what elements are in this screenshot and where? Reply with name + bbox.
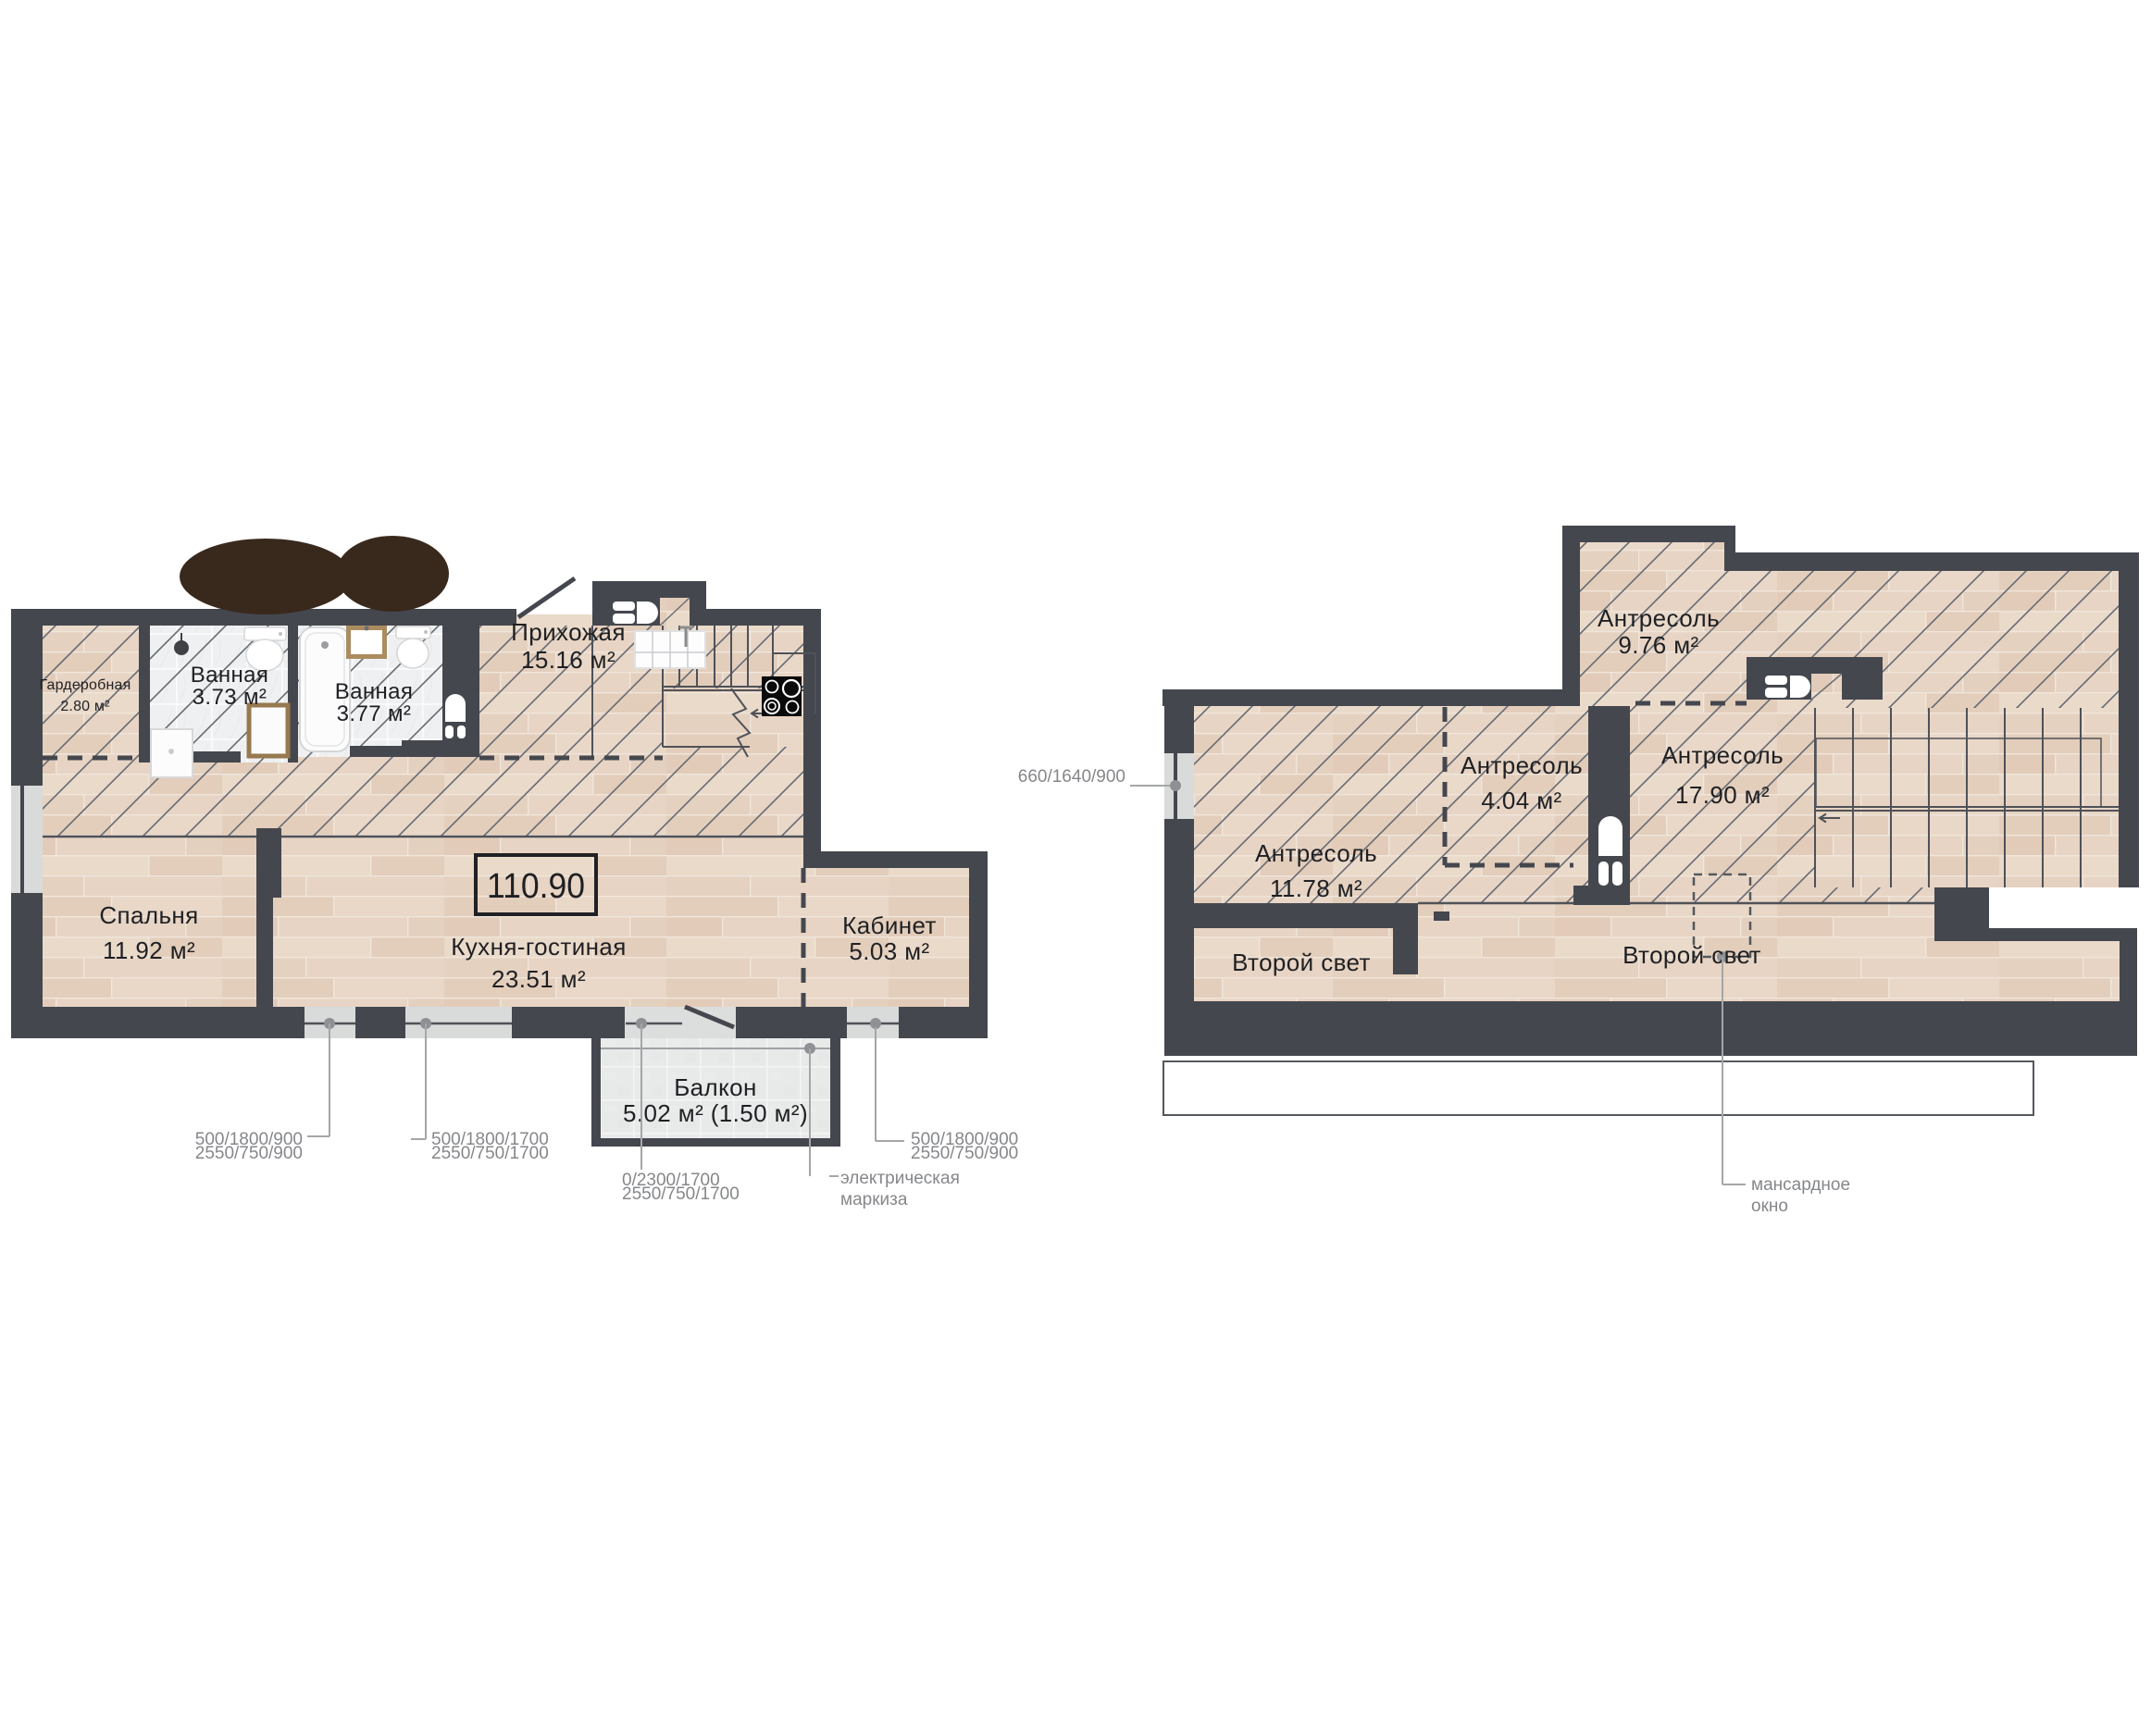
svg-text:мансардное: мансардное	[1751, 1175, 1850, 1195]
svg-text:2550/750/1700: 2550/750/1700	[431, 1144, 549, 1163]
svg-text:17.90 м²: 17.90 м²	[1675, 781, 1770, 809]
svg-text:Антресоль: Антресоль	[1661, 741, 1784, 769]
svg-text:2550/750/1700: 2550/750/1700	[622, 1184, 740, 1204]
svg-text:Кухня-гостиная: Кухня-гостиная	[451, 933, 627, 961]
svg-text:Антресоль: Антресоль	[1598, 604, 1720, 632]
svg-text:3.77 м²: 3.77 м²	[337, 701, 412, 726]
svg-text:15.16 м²: 15.16 м²	[521, 646, 615, 674]
svg-text:маркиза: маркиза	[840, 1190, 908, 1209]
svg-text:окно: окно	[1751, 1197, 1788, 1216]
svg-text:5.02 м² (1.50 м²): 5.02 м² (1.50 м²)	[623, 1099, 808, 1127]
svg-text:электрическая: электрическая	[840, 1169, 960, 1188]
svg-text:4.04 м²: 4.04 м²	[1481, 787, 1561, 814]
svg-text:2550/750/900: 2550/750/900	[195, 1144, 303, 1163]
svg-text:Балкон: Балкон	[674, 1073, 757, 1101]
svg-text:Антресоль: Антресоль	[1255, 839, 1377, 867]
svg-text:110.90: 110.90	[487, 867, 585, 906]
svg-text:9.76 м²: 9.76 м²	[1618, 631, 1698, 659]
svg-text:Гардеробная: Гардеробная	[40, 677, 131, 693]
svg-text:Прихожая: Прихожая	[511, 618, 626, 646]
svg-text:Ванная: Ванная	[191, 663, 269, 688]
svg-text:23.51 м²: 23.51 м²	[491, 965, 586, 993]
svg-text:11.78 м²: 11.78 м²	[1270, 874, 1362, 902]
svg-text:Ванная: Ванная	[335, 679, 414, 704]
svg-text:Второй свет: Второй свет	[1232, 949, 1371, 976]
svg-text:2.80 м²: 2.80 м²	[60, 699, 110, 714]
svg-text:2550/750/900: 2550/750/900	[911, 1144, 1018, 1163]
svg-text:3.73 м²: 3.73 м²	[193, 685, 267, 710]
svg-text:660/1640/900: 660/1640/900	[1018, 767, 1125, 787]
svg-text:11.92 м²: 11.92 м²	[103, 936, 195, 964]
svg-text:Кабинет: Кабинет	[842, 911, 937, 939]
svg-text:5.03 м²: 5.03 м²	[849, 937, 929, 965]
svg-text:Спальня: Спальня	[99, 901, 198, 929]
svg-text:Второй свет: Второй свет	[1623, 941, 1761, 969]
svg-text:Антресоль: Антресоль	[1461, 751, 1583, 779]
